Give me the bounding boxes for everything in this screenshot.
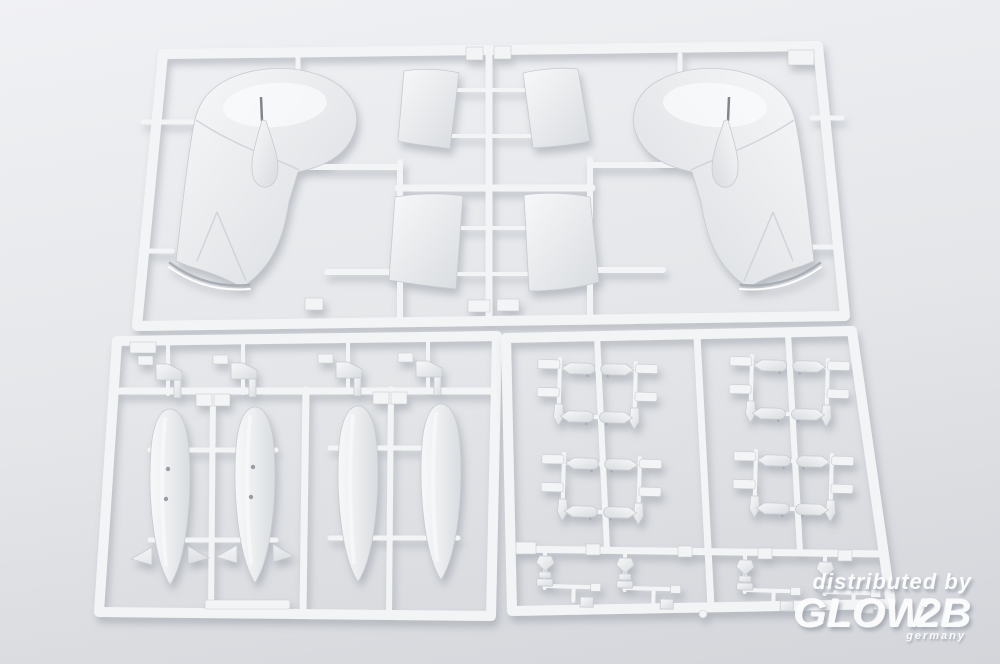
drop-tank-part bbox=[421, 404, 461, 580]
right-float-cowling-part bbox=[633, 68, 821, 289]
bracket-part bbox=[398, 341, 442, 395]
bomb-cluster bbox=[732, 450, 854, 522]
bottom-left-sprue bbox=[99, 336, 497, 616]
bomb-cluster bbox=[540, 453, 662, 525]
small-fitting-part bbox=[535, 556, 601, 608]
tailplane-panel bbox=[389, 194, 463, 289]
top-sprue bbox=[137, 46, 845, 326]
tailplane-panel bbox=[398, 69, 459, 149]
sprue-photo bbox=[0, 0, 1000, 664]
finned-bomb-part bbox=[131, 409, 209, 585]
tailplane-panel bbox=[524, 193, 599, 291]
left-float-cowling-part bbox=[169, 68, 357, 289]
tailplane-panels bbox=[389, 68, 599, 291]
drop-tank-part bbox=[338, 406, 378, 582]
photo-page: { "scene": { "description": "Product pho… bbox=[0, 0, 1000, 664]
tailplane-panel bbox=[523, 68, 590, 148]
small-fitting-part bbox=[615, 558, 681, 610]
finned-bomb-part bbox=[216, 407, 294, 583]
bottom-right-sprue bbox=[506, 331, 891, 618]
